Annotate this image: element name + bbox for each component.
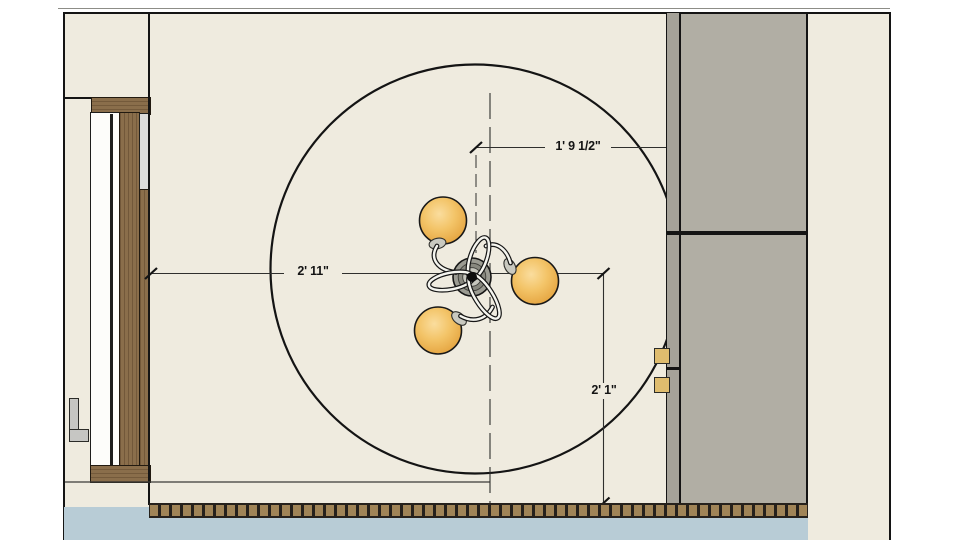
interior-wall-line [148, 13, 150, 505]
window-pane[interactable] [90, 112, 121, 468]
threshold-hatch-strip [149, 503, 808, 518]
dimension-label-top[interactable]: 1' 9 1/2" [545, 139, 611, 155]
drawing-canvas[interactable]: 1' 9 1/2" 2' 11" 2' 1" [0, 0, 960, 540]
dimension-label-right[interactable]: 2' 1" [577, 383, 631, 399]
door-gap-line [666, 367, 680, 370]
window-mullion-wood[interactable] [119, 112, 140, 468]
door-panel-divider [666, 231, 808, 235]
window-head-line [64, 97, 93, 99]
ceiling-edge-line [58, 8, 890, 9]
door-panel[interactable] [679, 12, 808, 506]
door-handle-foot [69, 429, 89, 442]
window-sill-wood[interactable] [90, 465, 151, 483]
door-hinge-bottom[interactable] [654, 377, 670, 393]
threshold-hatch-cells [150, 505, 807, 516]
door-hinge-top[interactable] [654, 348, 670, 364]
window-sash-line [110, 114, 113, 466]
door-edge-strip[interactable] [666, 12, 680, 506]
dimension-label-middle[interactable]: 2' 11" [284, 264, 342, 280]
